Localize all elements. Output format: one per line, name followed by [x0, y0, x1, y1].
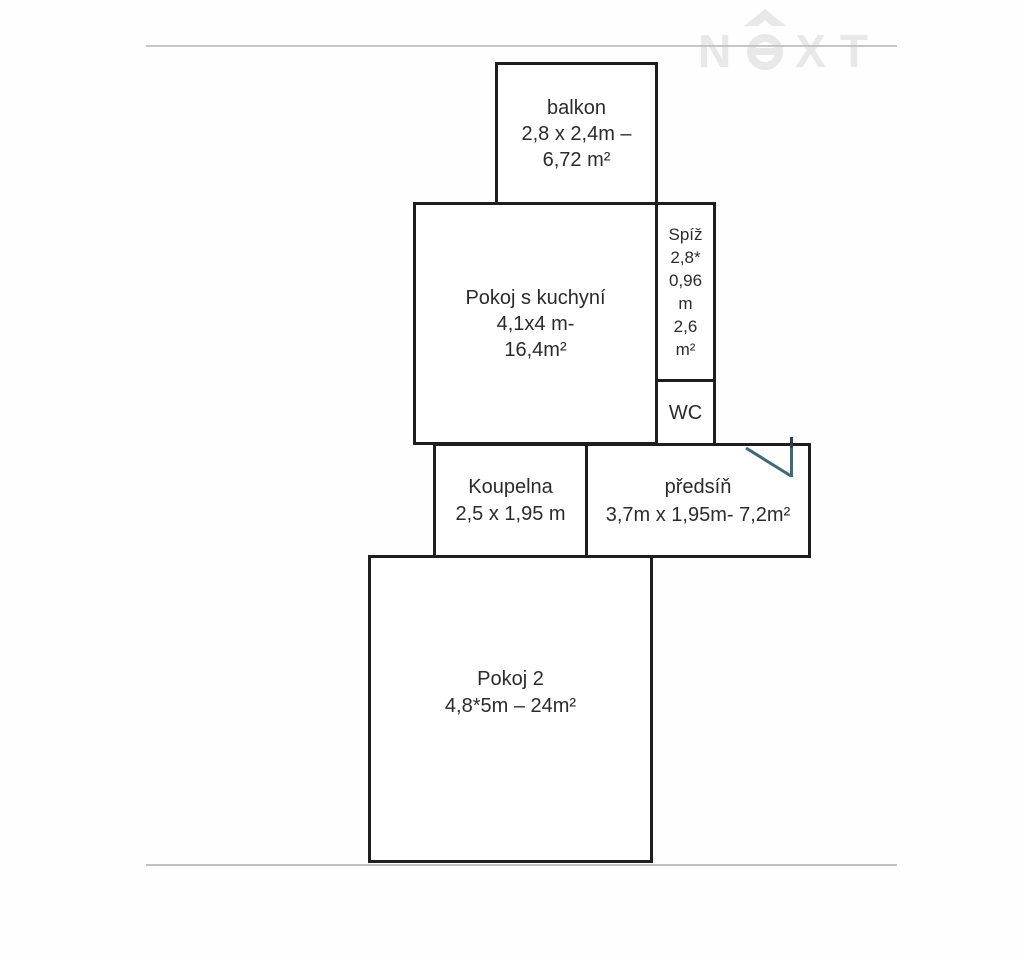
room-wc-name: WC: [669, 400, 702, 426]
room-pokoj-s-kuchyni-dimensions: 4,1x4 m-: [497, 311, 575, 337]
room-balkon-area: 6,72 m²: [543, 147, 611, 173]
next-logo-letters-xt: XT: [795, 28, 882, 74]
room-predsin-dimensions: 3,7m x 1,95m- 7,2m²: [606, 501, 791, 529]
room-spiz-area-1: 2,6: [674, 315, 698, 338]
room-pokoj-2-name: Pokoj 2: [477, 666, 544, 693]
room-balkon: balkon 2,8 x 2,4m – 6,72 m²: [495, 62, 658, 205]
next-logo: N XT: [698, 28, 882, 74]
room-koupelna-name: Koupelna: [468, 474, 553, 501]
room-pokoj-s-kuchyni-area: 16,4m²: [504, 337, 566, 363]
room-balkon-dimensions: 2,8 x 2,4m –: [521, 121, 631, 147]
frame-line-bottom: [146, 864, 897, 866]
roof-notch: [753, 20, 777, 31]
next-logo-letter-n: N: [698, 28, 735, 74]
room-spiz-dim-2: 0,96: [669, 269, 702, 292]
room-spiz-name: Spíž: [668, 223, 702, 246]
room-predsin: předsíň 3,7m x 1,95m- 7,2m²: [585, 443, 811, 558]
room-pokoj-2: Pokoj 2 4,8*5m – 24m²: [368, 555, 653, 863]
floorplan-canvas: N XT balkon 2,8 x 2,4m – 6,72 m² Pokoj s…: [0, 0, 1024, 957]
room-spiz-area-2: m²: [676, 338, 696, 361]
room-predsin-name: předsíň: [665, 473, 732, 501]
circle-e-bar: [754, 48, 776, 55]
room-spiz: Spíž 2,8* 0,96 m 2,6 m²: [655, 202, 716, 382]
room-pokoj-2-dimensions: 4,8*5m – 24m²: [445, 693, 576, 720]
room-pokoj-s-kuchyni: Pokoj s kuchyní 4,1x4 m- 16,4m²: [413, 202, 658, 445]
room-pokoj-s-kuchyni-name: Pokoj s kuchyní: [465, 285, 605, 311]
room-balkon-name: balkon: [547, 95, 606, 121]
next-logo-house-icon: [747, 33, 783, 69]
room-spiz-dim-3: m: [678, 292, 692, 315]
room-koupelna-dimensions: 2,5 x 1,95 m: [455, 501, 565, 528]
room-koupelna: Koupelna 2,5 x 1,95 m: [433, 443, 588, 558]
room-wc: WC: [655, 379, 716, 446]
room-spiz-dim-1: 2,8*: [670, 246, 700, 269]
frame-line-top: [146, 45, 897, 47]
